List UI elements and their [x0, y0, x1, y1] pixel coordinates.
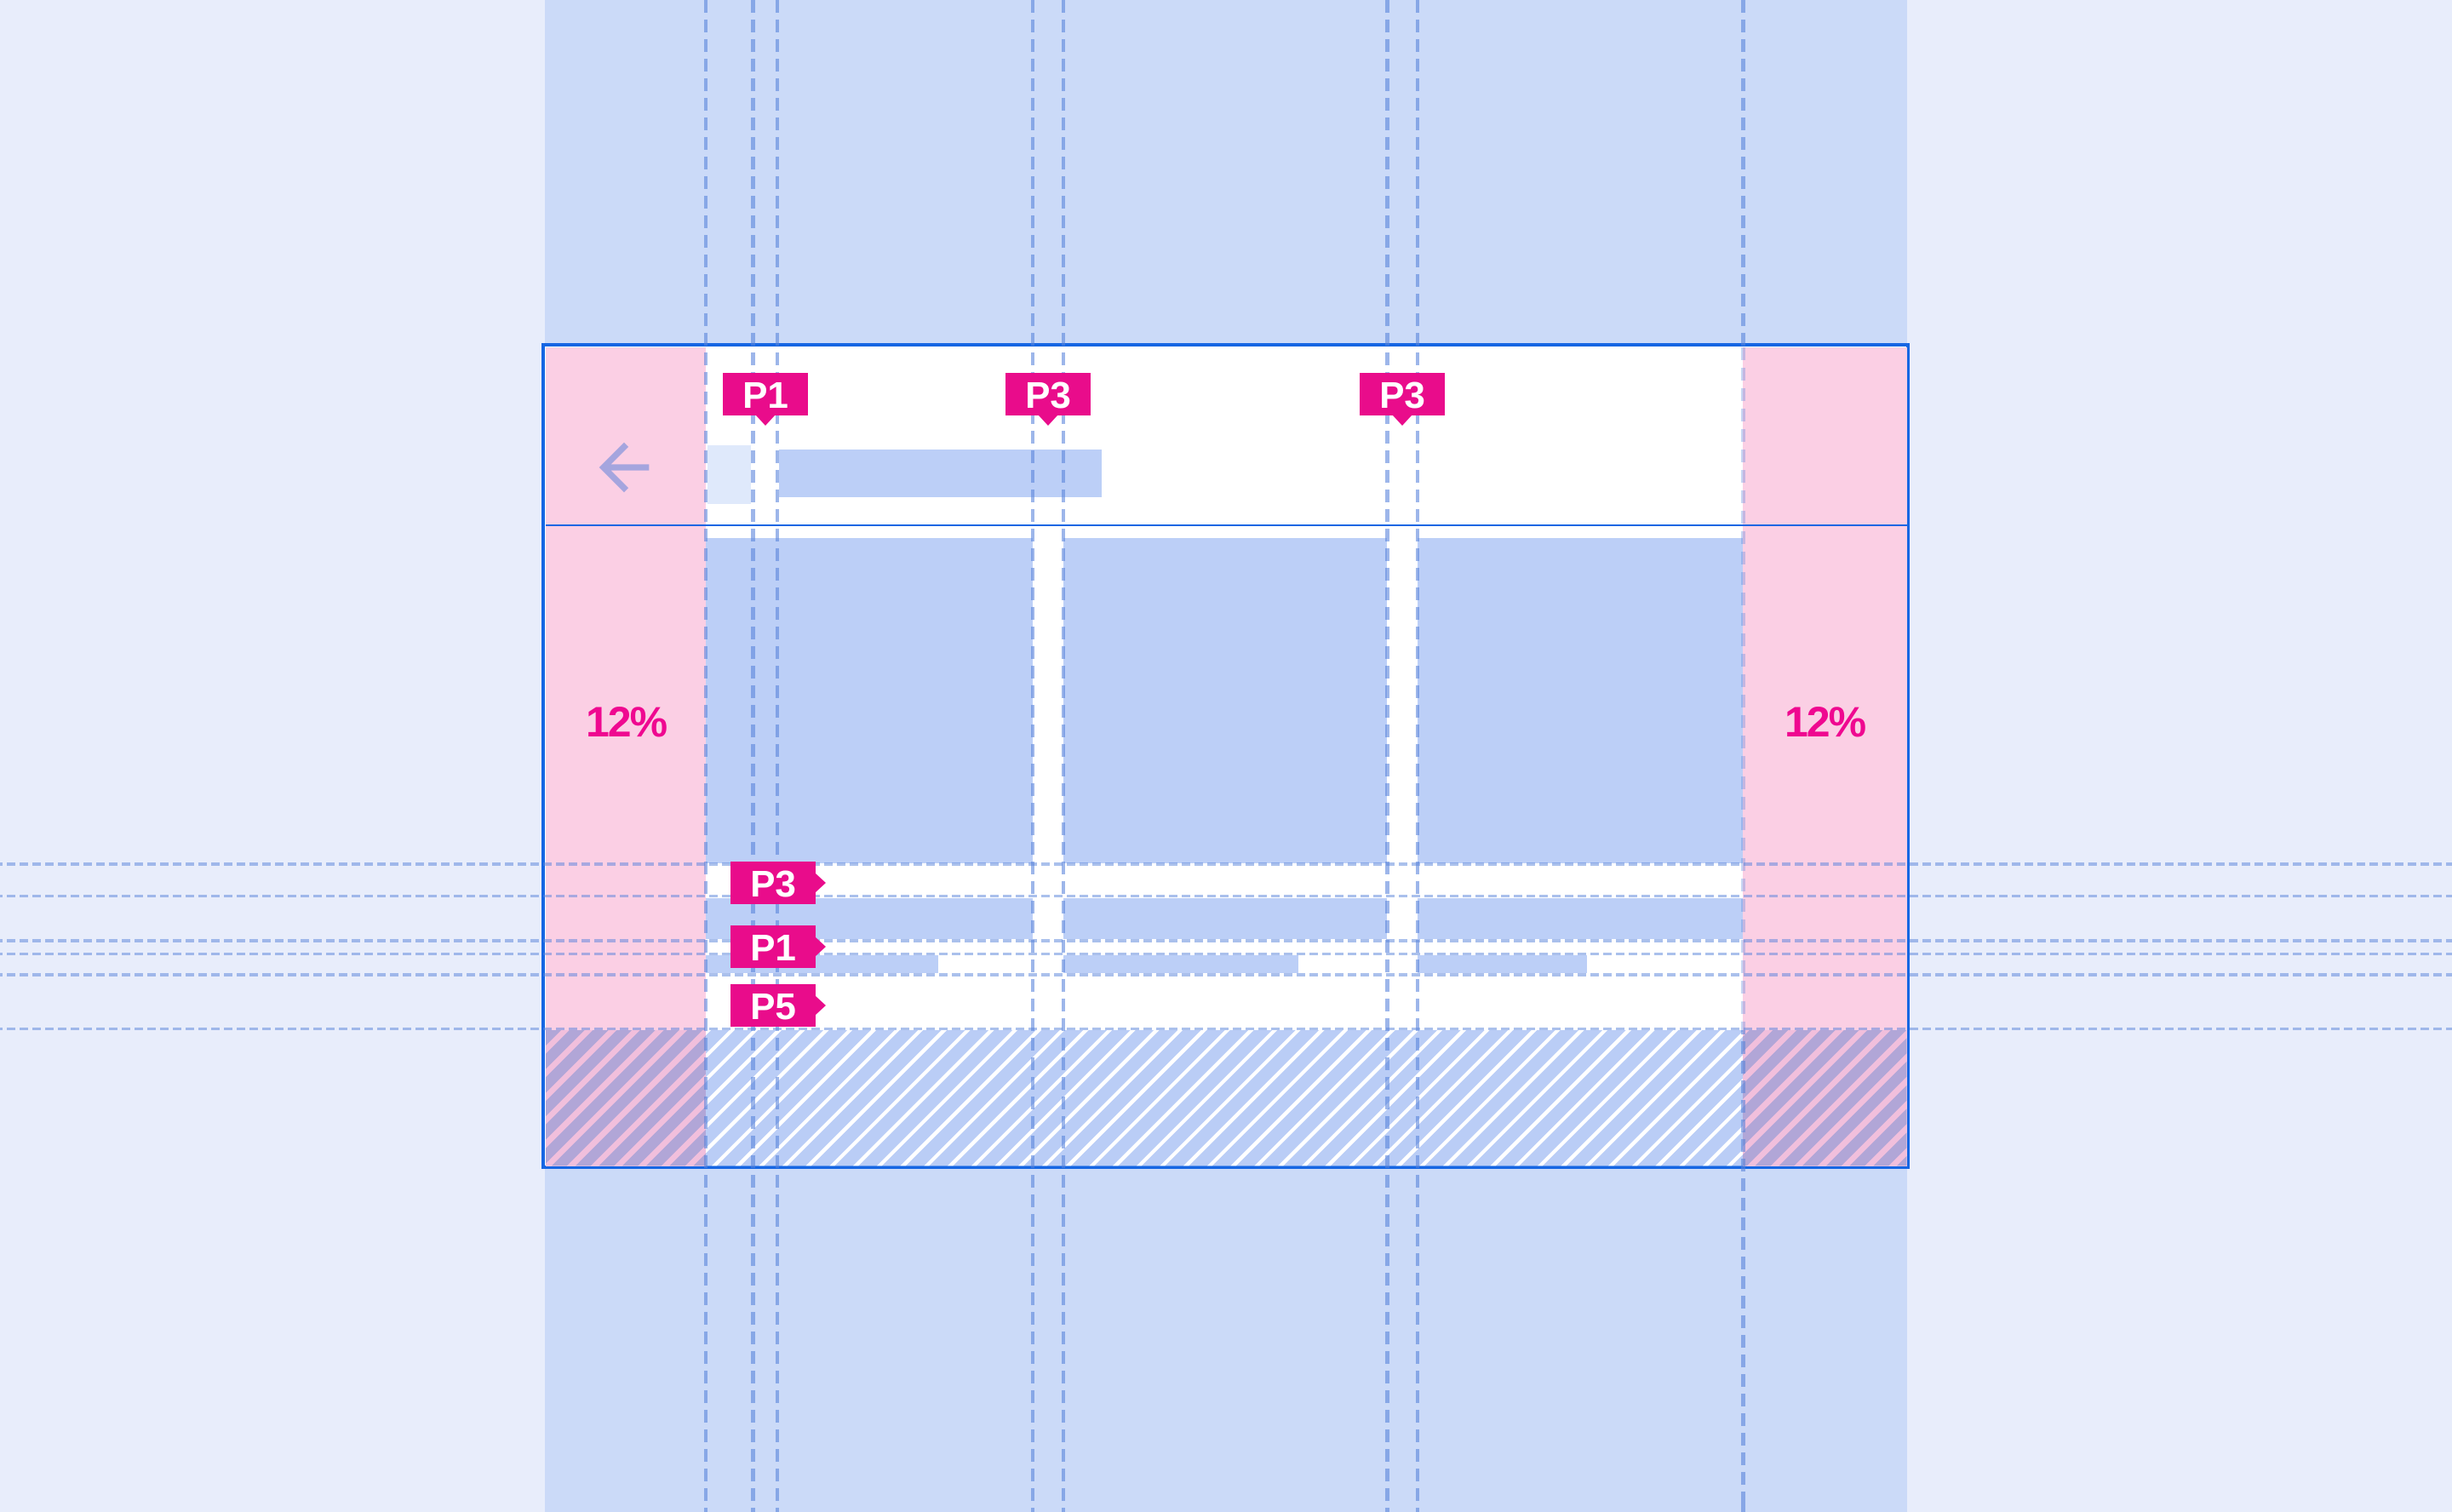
svg-text:P3: P3: [1379, 375, 1425, 416]
svg-text:P5: P5: [750, 986, 796, 1027]
svg-text:P3: P3: [750, 863, 796, 904]
svg-text:P3: P3: [1025, 375, 1071, 416]
svg-text:P1: P1: [750, 927, 796, 968]
svg-text:P1: P1: [742, 375, 788, 416]
